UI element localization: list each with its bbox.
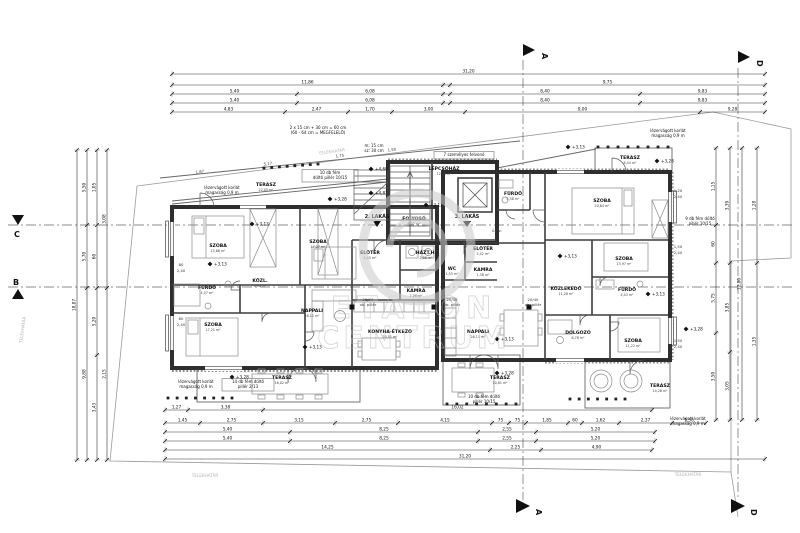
pillar-dot xyxy=(176,397,179,400)
dim-label: 1,15 xyxy=(710,181,716,191)
small-text: 1,50 xyxy=(674,338,683,343)
level-diamond-icon xyxy=(208,262,213,267)
pillar-dot xyxy=(263,167,266,170)
room-label: SZOBA xyxy=(204,322,222,328)
section-marker-b-label: B xyxy=(13,278,19,287)
small-text: 80 xyxy=(179,316,184,321)
dim-label: 3,05 xyxy=(724,381,730,391)
dim-label: 8,25 xyxy=(379,426,389,432)
room-label: TERASZ xyxy=(620,155,641,161)
note-text: sz: 30 cm xyxy=(364,148,383,153)
pillar-dot xyxy=(569,398,572,401)
dim-label: 1,05 xyxy=(91,182,97,192)
note-text: pillér 10/15 xyxy=(473,399,496,404)
dim-label: 9,83 xyxy=(698,97,708,103)
dim-label: 5,40 xyxy=(223,435,233,441)
dim-label: 31,20 xyxy=(462,68,475,74)
level-value: +3,13 xyxy=(214,262,227,267)
note-text: magasság 0,9 m xyxy=(179,384,212,389)
room-label: LÉPCSŐHÁZ xyxy=(429,164,461,172)
room-label: KÖZLEKEDŐ xyxy=(550,285,581,292)
note-text: 7 személyes felvonó xyxy=(444,152,485,157)
pillar-dot xyxy=(167,397,170,400)
dim-label: 9,75 xyxy=(603,79,613,85)
room-area-label: 22,05 m² xyxy=(258,188,274,192)
level-value: +3,13 xyxy=(652,292,665,297)
room-area-label: 2,86 m² xyxy=(420,256,434,260)
dim-label: 6,08 xyxy=(365,97,375,103)
section-markers: A D C B A D xyxy=(12,44,764,516)
note-text: magasság 0,9 m xyxy=(651,133,684,138)
pillar-dot xyxy=(293,164,296,167)
dim-label: 2,25 xyxy=(511,444,521,450)
floor-plan-page: 31,2011,869,755,406,088,409,835,406,088,… xyxy=(0,0,800,533)
dim-label: 5,40 xyxy=(230,88,240,94)
pillar-dot xyxy=(637,146,640,149)
section-lines xyxy=(8,60,795,500)
level-diamond-icon xyxy=(646,292,651,297)
pillar-dot xyxy=(605,398,608,401)
pillar-dot xyxy=(667,146,670,149)
room-label: KAMRA xyxy=(474,267,493,273)
small-text: vb. pillér xyxy=(525,302,542,307)
room-labels: SZOBA15,66 m²SZOBA17,27 m²FÜRDŐ4,57 m²KÖ… xyxy=(198,155,671,393)
pillar-dot xyxy=(597,146,600,149)
section-marker-a-top-label: A xyxy=(540,53,549,60)
room-label: NAPPALI xyxy=(301,308,323,314)
room-area-label: 4,43 m² xyxy=(621,293,635,297)
dim-label: 3,15 xyxy=(294,417,304,423)
level-value: +4,68 xyxy=(375,167,388,172)
pillar-dot xyxy=(596,398,599,401)
elevator xyxy=(458,178,492,212)
watermark-text-line2: CENTRUM xyxy=(317,321,510,356)
dim-label: 2,37 xyxy=(641,417,651,423)
dim-label: 5,20 xyxy=(91,316,97,326)
level-value: +3,28 xyxy=(501,371,514,376)
section-marker-d-top-icon xyxy=(738,51,750,63)
room-area-label: 1,38 m² xyxy=(477,273,491,277)
small-text: 2,40 xyxy=(674,250,683,255)
dim-label: 9,00 xyxy=(578,106,588,112)
level-diamond-icon xyxy=(558,254,563,259)
dim-label: 1,45 xyxy=(178,417,188,423)
dim-label: 12,80 xyxy=(736,278,742,291)
dim-label: 1,85 xyxy=(542,417,552,423)
dim-label: 6,08 xyxy=(365,88,375,94)
room-area-label: 6,78 m² xyxy=(572,336,586,340)
note-text: magasság 0,9 m xyxy=(205,190,238,195)
pillar-dot xyxy=(221,397,224,400)
dim-label: 2,15 xyxy=(101,369,107,379)
floor-plan-drawing: 31,2011,869,755,406,088,409,835,406,088,… xyxy=(0,0,800,533)
room-label: SZOBA xyxy=(309,239,327,245)
section-marker-c-label: C xyxy=(14,230,20,239)
pillar-dot xyxy=(657,146,660,149)
room-area-label: 17,21 m² xyxy=(205,328,221,332)
pillar-dot xyxy=(465,403,468,406)
pillar-dot xyxy=(317,163,320,166)
section-marker-b-icon xyxy=(12,289,24,299)
dim-label: 3,00 xyxy=(424,106,434,112)
pillar-dot xyxy=(587,398,590,401)
dim-label: 3,08 xyxy=(101,214,107,224)
note-text: (60 - 64 cm = MEGFELELŐ) xyxy=(291,130,346,135)
level-value: +3,13 xyxy=(572,145,585,150)
level-diamond-icon xyxy=(566,145,571,150)
level-diamond-icon xyxy=(369,167,374,172)
dim-label: 3,50 xyxy=(710,371,716,381)
dim-label: 18,87 xyxy=(71,299,77,312)
room-area-label: 5,42 m² xyxy=(477,252,491,256)
pillar-dot xyxy=(231,397,234,400)
pillar-dot xyxy=(515,403,518,406)
note-text: pillér 10/15 xyxy=(689,221,712,226)
room-area-label: 20,64 m² xyxy=(594,204,610,208)
dim-label: 9,28 xyxy=(728,106,738,112)
dim-label: 60 xyxy=(710,241,716,247)
dim-label: 5,20 xyxy=(591,435,601,441)
level-diamond-icon xyxy=(369,191,374,196)
level-value: +3,28 xyxy=(236,375,249,380)
dim-label: 9,83 xyxy=(698,88,708,94)
dim-label: 8,25 xyxy=(379,435,389,441)
room-label: TERASZ xyxy=(272,375,293,381)
level-diamond-icon xyxy=(655,159,660,164)
level-value: +3,28 xyxy=(334,197,347,202)
dim-label: 2,55 xyxy=(502,435,512,441)
dim-label: 1,62 xyxy=(596,417,606,423)
room-area-label: 14,26 m² xyxy=(652,389,668,393)
section-marker-a-top-icon xyxy=(523,44,535,56)
section-marker-d-bottom-label: D xyxy=(749,509,758,516)
dim-label: 11,86 xyxy=(301,79,314,85)
dim-label: 5,75 xyxy=(710,293,716,303)
pillar-dot xyxy=(185,397,188,400)
dim-label: 5,20 xyxy=(591,426,601,432)
small-text: 1,20 xyxy=(674,188,683,193)
pillar-dot xyxy=(446,403,449,406)
level-value: +3,13 xyxy=(564,254,577,259)
room-area-label: 16,02 m² xyxy=(274,381,290,385)
dim-label: 1,27 xyxy=(172,404,182,410)
room-label: TERASZ xyxy=(490,375,511,381)
pillar-dot xyxy=(627,146,630,149)
small-text: 80 xyxy=(179,262,184,267)
room-area-label: 10,81 m² xyxy=(492,381,508,385)
room-label: WC xyxy=(448,266,457,272)
dim-label: 1,70 xyxy=(365,106,375,112)
room-label: SZOBA xyxy=(209,243,227,249)
note-text: dűltő pillér 10/15 xyxy=(313,175,348,180)
room-area-label: 5,38 m² xyxy=(507,197,521,201)
room-label: TERASZ xyxy=(256,182,277,188)
dim-label: 5,40 xyxy=(230,97,240,103)
pillar-dot xyxy=(286,165,289,168)
pillar-dot xyxy=(505,403,508,406)
pillar-dot xyxy=(624,398,627,401)
room-label: TERASZ xyxy=(650,383,671,389)
room-area-label: 11,22 m² xyxy=(625,344,641,348)
pillar-dot xyxy=(607,146,610,149)
dim-label: 75 xyxy=(498,417,504,423)
dim-label: 8,40 xyxy=(540,97,550,103)
pillar-dot xyxy=(455,403,458,406)
boundary-label: TELEKHATÁR xyxy=(18,316,27,344)
pillar-dot xyxy=(301,164,304,167)
room-area-label: 8,44 m² xyxy=(624,161,638,165)
room-area-label: 13,97 m² xyxy=(616,262,632,266)
level-diamond-icon xyxy=(328,197,333,202)
small-text: 1,50 xyxy=(387,147,397,153)
section-marker-a-bottom-label: A xyxy=(534,509,543,516)
pillar-dot xyxy=(578,398,581,401)
room-label: FÜRDŐ xyxy=(504,190,522,197)
dim-label: 75 xyxy=(515,417,521,423)
dim-label: 9,88 xyxy=(81,369,87,379)
room-label: ELŐTÉR xyxy=(473,244,493,252)
level-diamond-icon xyxy=(303,345,308,350)
small-text: 2,40 xyxy=(177,268,186,273)
level-value: +4,83 xyxy=(375,191,388,196)
room-label: HÁZT.H. xyxy=(416,249,437,256)
dim-label: 60 xyxy=(572,417,578,423)
level-diamond-icon xyxy=(495,371,500,376)
level-diamond-icon xyxy=(684,327,689,332)
pillar-dot xyxy=(203,397,206,400)
dim-label: 4,83 xyxy=(224,106,234,112)
note-text: pillér 2/13 xyxy=(238,384,259,389)
small-text: 1,75 xyxy=(335,153,345,159)
room-area-label: 17,27 m² xyxy=(310,245,326,249)
section-marker-a-bottom-icon xyxy=(516,499,530,513)
dim-label: 4,15 xyxy=(440,417,450,423)
dim-label: 1,35 xyxy=(751,336,757,346)
pillar-dot xyxy=(212,397,215,400)
dim-label: 14,25 xyxy=(321,444,334,450)
dim-label: 5,70 xyxy=(81,251,87,261)
dim-label: 2,47 xyxy=(312,106,322,112)
small-text: 0. sz. xyxy=(492,228,502,233)
dim-label: 4,90 xyxy=(592,444,602,450)
room-area-label: 28,11 m² xyxy=(304,314,320,318)
dim-label: 60 xyxy=(91,254,97,260)
pillar-dot xyxy=(194,397,197,400)
dim-label: 3,38 xyxy=(221,404,231,410)
dim-label: 5,50 xyxy=(81,182,87,192)
room-label: DOLGOZÓ xyxy=(565,329,591,336)
dim-label: 8,40 xyxy=(540,88,550,94)
small-text: 5,17 xyxy=(263,161,273,167)
room-area-label: 3,96 m² xyxy=(254,284,268,288)
small-text: 2,40 xyxy=(177,322,186,327)
level-value: +3,13 xyxy=(256,222,269,227)
small-text: 1,67 xyxy=(195,169,205,175)
pillar-dot xyxy=(309,163,312,166)
room-area-label: 11,28 m² xyxy=(558,292,574,296)
pillar-dot xyxy=(278,165,281,168)
room-label: FÜRDŐ xyxy=(198,284,216,291)
pillar-dot xyxy=(614,398,617,401)
dim-label: 2,75 xyxy=(227,417,237,423)
room-area-label: 12,36 m² xyxy=(436,172,452,176)
pillar-dot xyxy=(647,146,650,149)
dim-label: 1,28 xyxy=(751,200,757,210)
room-area-label: 4,57 m² xyxy=(201,291,215,295)
small-text: 2,40 xyxy=(674,194,683,199)
dim-label: 5,40 xyxy=(223,426,233,432)
room-label: SZOBA xyxy=(593,198,611,204)
pillar-dot xyxy=(617,146,620,149)
small-text: 1,50 xyxy=(674,244,683,249)
pillar-dot xyxy=(270,166,273,169)
dim-label: 2,75 xyxy=(362,417,372,423)
level-value: +3,28 xyxy=(690,327,703,332)
section-marker-d-bottom-icon xyxy=(731,499,745,513)
dim-label: 31,20 xyxy=(459,453,472,459)
dim-label: 3,85 xyxy=(724,302,730,312)
dim-label: 3,39 xyxy=(724,200,730,210)
dim-label: 3,43 xyxy=(91,402,97,412)
boundary-label: TELEKHATÁR xyxy=(674,472,702,477)
level-value: +3,28 xyxy=(661,159,674,164)
room-area-label: 1,55 m² xyxy=(446,272,460,276)
room-label: SZOBA xyxy=(615,256,633,262)
section-marker-d-top-label: D xyxy=(755,60,764,67)
note-text: magasság 0,9 m xyxy=(671,421,704,426)
room-area-label: 15,66 m² xyxy=(210,249,226,253)
room-label: FÜRDŐ xyxy=(618,286,636,293)
boundary-label: TELEKHATÁR xyxy=(191,473,219,478)
section-marker-c-icon xyxy=(12,215,24,225)
dim-label: 2,55 xyxy=(502,426,512,432)
room-label: SZOBA xyxy=(624,338,642,344)
room-label: KÖZL. xyxy=(252,277,268,284)
small-text: 2,40 xyxy=(674,344,683,349)
